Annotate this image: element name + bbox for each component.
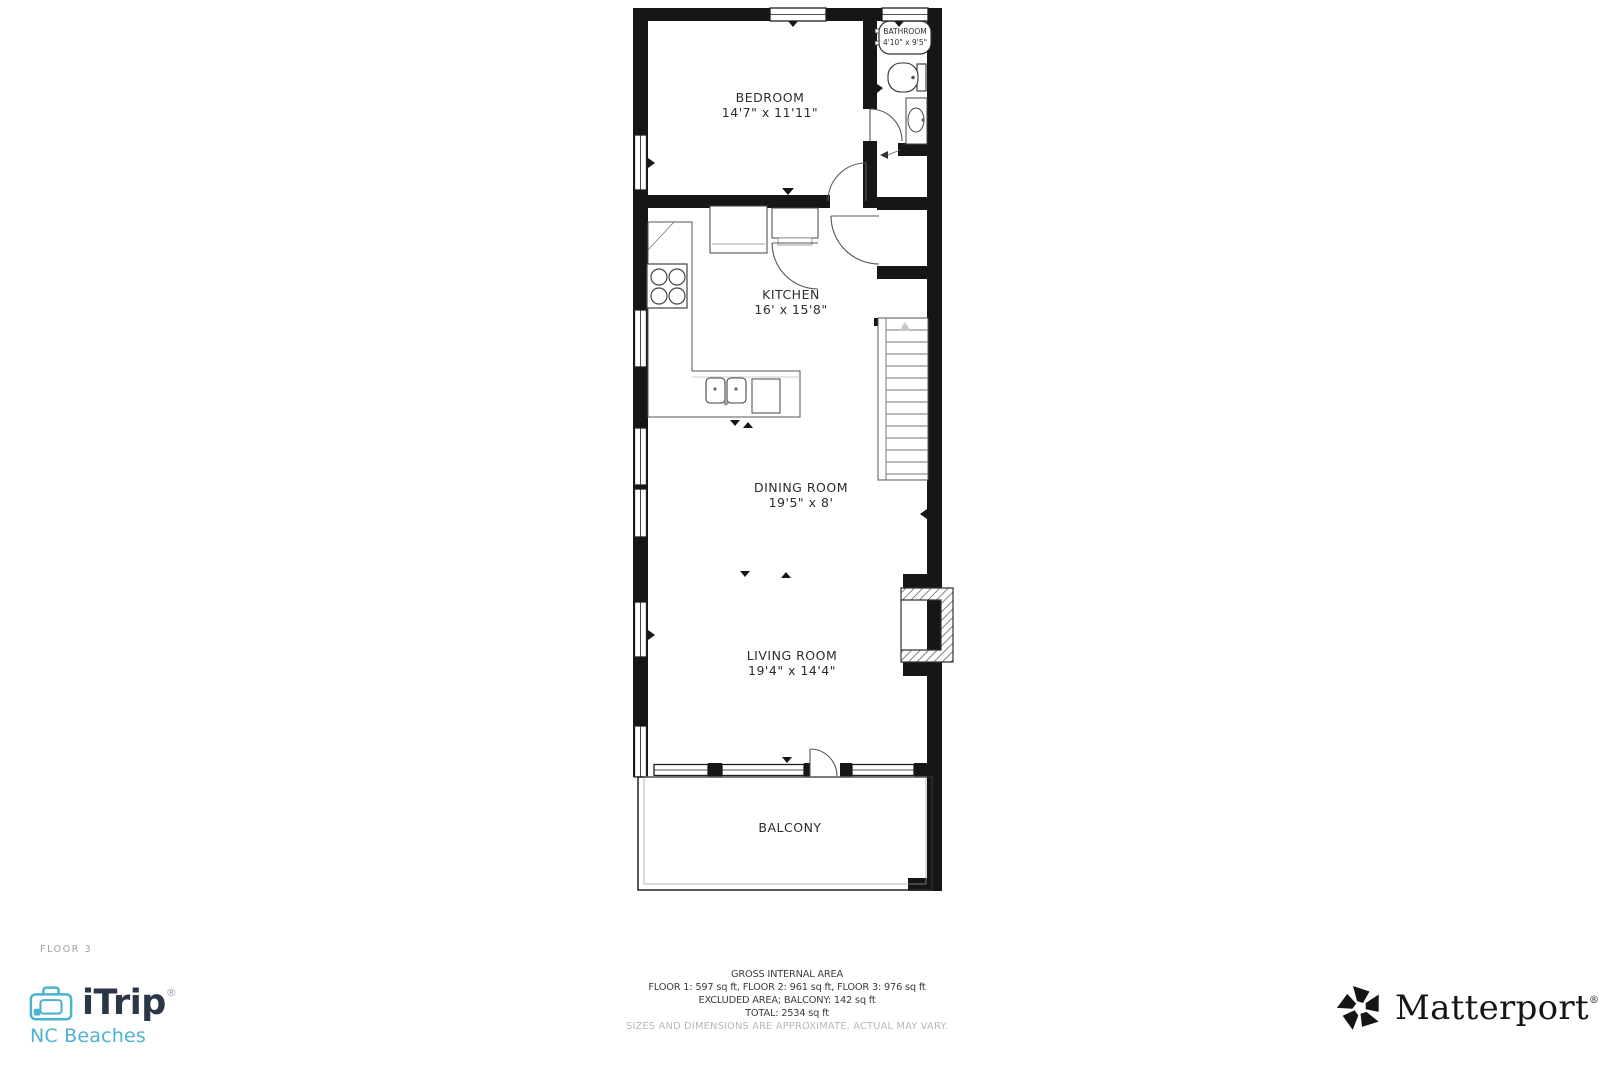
area-summary-title: GROSS INTERNAL AREA — [480, 969, 1094, 982]
dining-room-dims: 19'5" x 8' — [769, 495, 834, 510]
area-summary-floors: FLOOR 1: 597 sq ft, FLOOR 2: 961 sq ft, … — [480, 982, 1094, 995]
bathroom-dims: 4'10" x 9'5" — [883, 38, 927, 47]
pantry-cabinet — [710, 206, 767, 253]
level-arrow — [880, 151, 888, 159]
bathroom-label: BATHROOM — [883, 27, 926, 36]
hall-closet-door — [831, 216, 879, 264]
matterport-wordmark: Matterport® — [1395, 991, 1599, 1025]
itrip-registered-mark: ® — [166, 986, 177, 999]
kitchen-label: KITCHEN — [762, 287, 820, 302]
itrip-wordmark: iTrip® — [82, 986, 176, 1021]
toilet-icon — [888, 63, 926, 92]
matterport-registered-mark: ® — [1589, 995, 1599, 1006]
area-summary: GROSS INTERNAL AREA FLOOR 1: 597 sq ft, … — [480, 969, 1094, 1034]
floor-number-label: FLOOR 3 — [40, 944, 92, 955]
dishwasher-icon — [752, 379, 780, 413]
balcony-door — [810, 749, 837, 776]
bedroom-label: BEDROOM — [736, 90, 805, 105]
matterport-pinwheel-icon — [1335, 983, 1385, 1033]
floor-plan-drawing: BEDROOM 14'7" x 11'11" BATHROOM 4'10" x … — [0, 0, 1599, 1066]
kitchen-dims: 16' x 15'8" — [754, 302, 827, 317]
stove-icon — [647, 264, 687, 308]
kitchen-closet-door — [772, 243, 818, 289]
matterport-logo: Matterport® — [1335, 983, 1599, 1033]
bedroom-dims: 14'7" x 11'11" — [722, 105, 818, 120]
living-room-dims: 19'4" x 14'4" — [748, 663, 836, 678]
area-summary-disclaimer: SIZES AND DIMENSIONS ARE APPROXIMATE, AC… — [480, 1021, 1094, 1034]
floorplan-page: BEDROOM 14'7" x 11'11" BATHROOM 4'10" x … — [0, 0, 1599, 1066]
stairs-icon — [878, 318, 928, 480]
area-summary-total: TOTAL: 2534 sq ft — [480, 1008, 1094, 1021]
bathroom-door — [870, 109, 902, 141]
balcony-label: BALCONY — [758, 820, 821, 835]
bedroom-door — [828, 163, 866, 201]
area-summary-excluded: EXCLUDED AREA; BALCONY: 142 sq ft — [480, 995, 1094, 1008]
dining-room-label: DINING ROOM — [754, 480, 848, 495]
living-room-label: LIVING ROOM — [747, 648, 838, 663]
itrip-region-label: NC Beaches — [30, 1025, 176, 1047]
bathroom-sink-icon — [906, 98, 927, 144]
itrip-logo: iTrip® NC Beaches — [28, 983, 176, 1047]
hall-closet-front — [772, 208, 818, 245]
suitcase-icon — [28, 983, 74, 1023]
